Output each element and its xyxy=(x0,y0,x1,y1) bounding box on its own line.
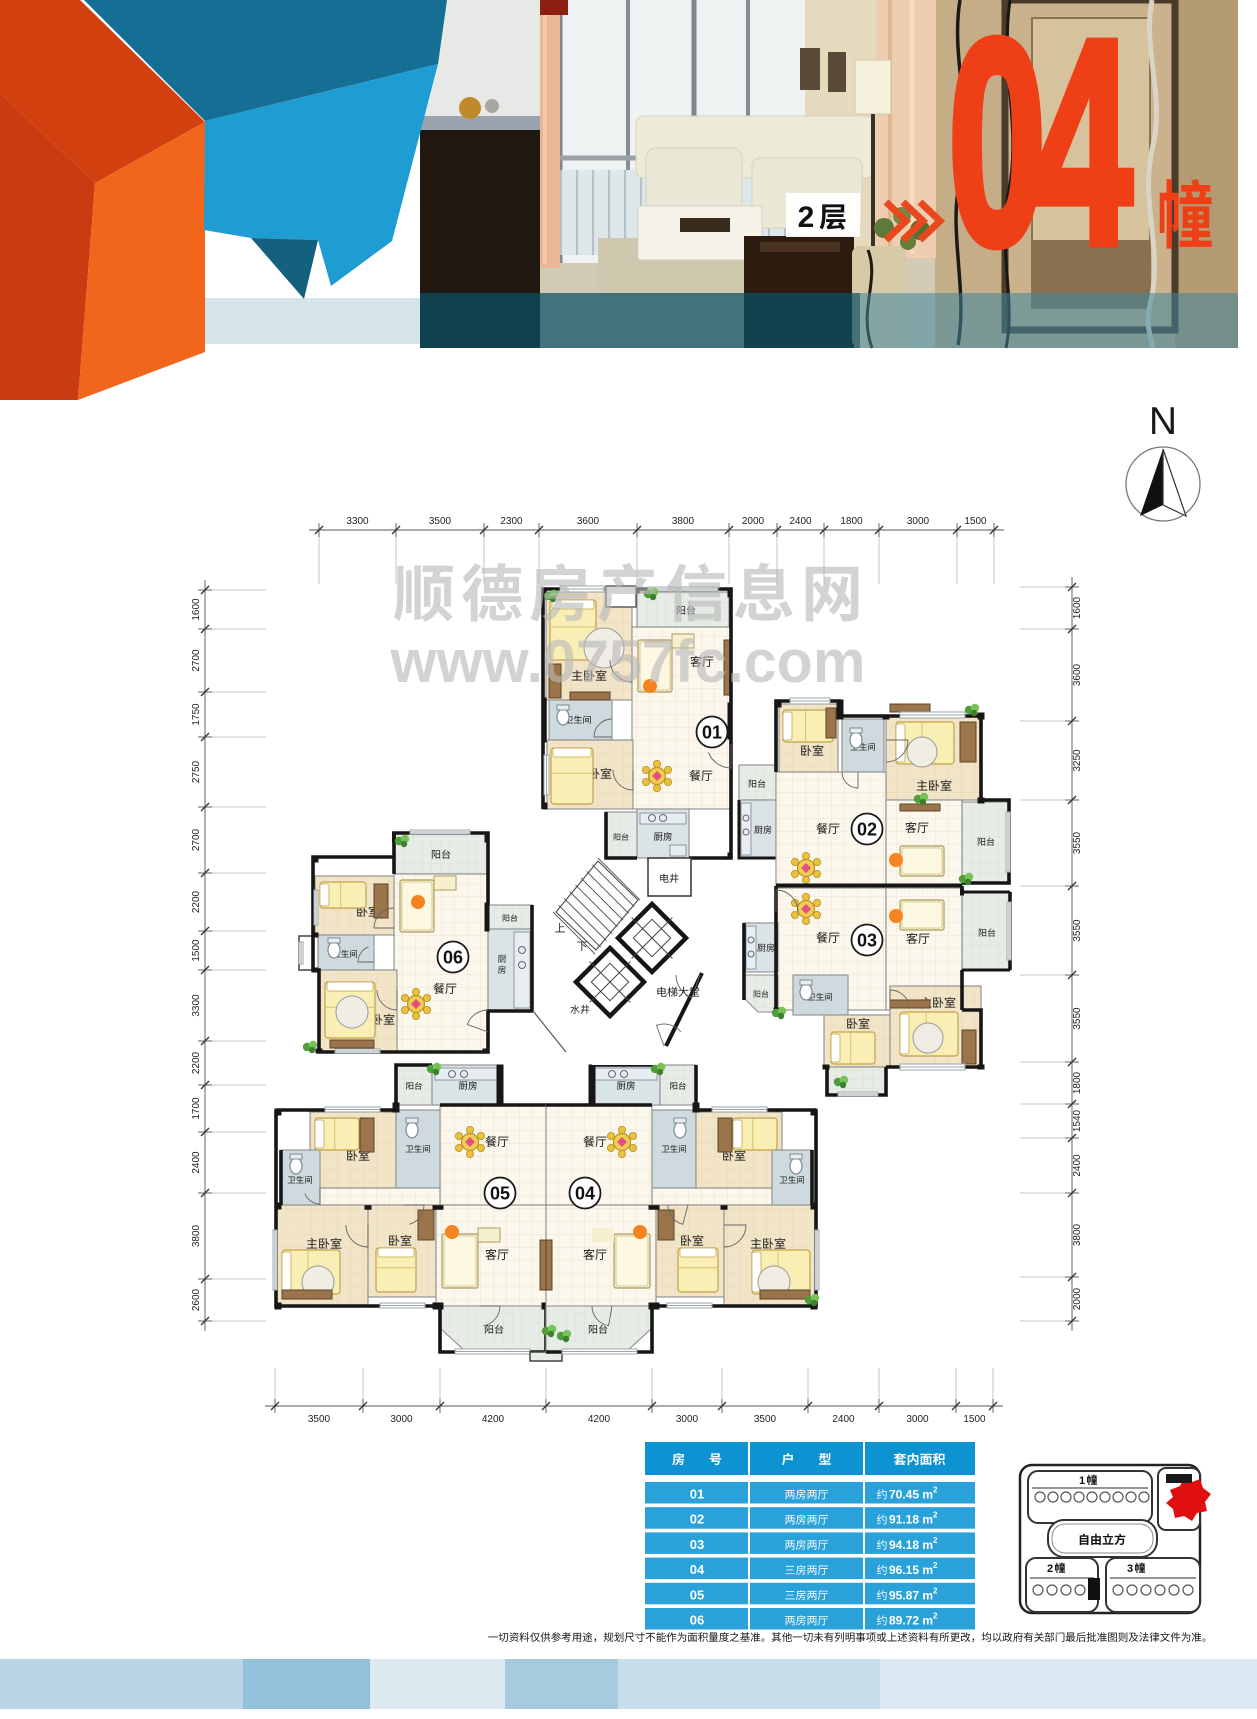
svg-text:3800: 3800 xyxy=(1072,1223,1083,1246)
svg-text:3500: 3500 xyxy=(308,1414,331,1425)
svg-text:2300: 2300 xyxy=(500,516,523,527)
svg-text:3000: 3000 xyxy=(907,516,930,527)
svg-text:3500: 3500 xyxy=(429,516,452,527)
svg-text:2: 2 xyxy=(933,1536,938,1545)
svg-text:3: 3 xyxy=(1127,1563,1133,1575)
svg-text:02: 02 xyxy=(690,1512,704,1527)
svg-text:3550: 3550 xyxy=(1072,1007,1083,1030)
svg-text:2000: 2000 xyxy=(1072,1287,1083,1310)
svg-text:1500: 1500 xyxy=(191,939,202,962)
svg-text:05: 05 xyxy=(690,1587,704,1602)
svg-text:06: 06 xyxy=(690,1613,704,1628)
svg-text:04: 04 xyxy=(948,0,1132,306)
svg-text:3800: 3800 xyxy=(191,1224,202,1247)
svg-text:95.87 m: 95.87 m xyxy=(889,1588,933,1602)
svg-text:2: 2 xyxy=(798,201,815,234)
svg-text:1750: 1750 xyxy=(191,703,202,726)
svg-text:05: 05 xyxy=(490,1184,510,1204)
svg-text:2750: 2750 xyxy=(191,760,202,783)
svg-text:2: 2 xyxy=(933,1561,938,1570)
svg-text:3300: 3300 xyxy=(346,516,369,527)
svg-text:04: 04 xyxy=(690,1562,705,1577)
svg-text:3250: 3250 xyxy=(1072,749,1083,772)
svg-text:www.0757fc.com: www.0757fc.com xyxy=(390,628,866,695)
svg-text:04: 04 xyxy=(575,1184,595,1204)
svg-text:94.18 m: 94.18 m xyxy=(889,1538,933,1552)
svg-text:1: 1 xyxy=(1079,1475,1085,1487)
svg-text:2400: 2400 xyxy=(191,1151,202,1174)
svg-text:3000: 3000 xyxy=(676,1414,699,1425)
svg-text:1500: 1500 xyxy=(964,516,987,527)
svg-text:89.72 m: 89.72 m xyxy=(889,1614,933,1628)
svg-text:2400: 2400 xyxy=(1072,1154,1083,1177)
svg-text:96.15 m: 96.15 m xyxy=(889,1563,933,1577)
svg-text:1600: 1600 xyxy=(1072,596,1083,619)
svg-text:2400: 2400 xyxy=(789,516,812,527)
svg-text:4200: 4200 xyxy=(588,1414,611,1425)
svg-text:2700: 2700 xyxy=(191,649,202,672)
svg-text:2: 2 xyxy=(933,1511,938,1520)
svg-text:01: 01 xyxy=(702,723,722,743)
svg-text:2400: 2400 xyxy=(832,1414,855,1425)
svg-text:2: 2 xyxy=(1047,1563,1053,1575)
svg-text:91.18 m: 91.18 m xyxy=(889,1513,933,1527)
svg-text:2000: 2000 xyxy=(742,516,765,527)
svg-text:06: 06 xyxy=(443,948,463,968)
svg-text:4200: 4200 xyxy=(482,1414,505,1425)
svg-text:3300: 3300 xyxy=(191,994,202,1017)
svg-text:3600: 3600 xyxy=(577,516,600,527)
svg-text:3000: 3000 xyxy=(906,1414,929,1425)
svg-text:1800: 1800 xyxy=(840,516,863,527)
svg-text:2: 2 xyxy=(933,1612,938,1621)
svg-text:1700: 1700 xyxy=(191,1097,202,1120)
svg-text:2700: 2700 xyxy=(191,828,202,851)
svg-text:3550: 3550 xyxy=(1072,919,1083,942)
svg-text:3600: 3600 xyxy=(1072,663,1083,686)
svg-text:1540: 1540 xyxy=(1072,1109,1083,1132)
svg-text:3000: 3000 xyxy=(390,1414,413,1425)
svg-text:01: 01 xyxy=(690,1487,704,1502)
svg-text:N: N xyxy=(1149,400,1177,443)
svg-text:03: 03 xyxy=(857,931,877,951)
svg-text:2: 2 xyxy=(933,1586,938,1595)
svg-text:03: 03 xyxy=(690,1537,704,1552)
svg-text:2: 2 xyxy=(933,1486,938,1495)
svg-text:1500: 1500 xyxy=(963,1414,986,1425)
svg-text:3500: 3500 xyxy=(754,1414,777,1425)
svg-text:3800: 3800 xyxy=(672,516,695,527)
svg-text:2600: 2600 xyxy=(191,1288,202,1311)
svg-text:70.45 m: 70.45 m xyxy=(889,1488,933,1502)
svg-text:02: 02 xyxy=(857,820,877,840)
svg-text:2200: 2200 xyxy=(191,1051,202,1074)
svg-text:3550: 3550 xyxy=(1072,831,1083,854)
svg-text:2200: 2200 xyxy=(191,890,202,913)
svg-text:1800: 1800 xyxy=(1072,1071,1083,1094)
svg-text:1600: 1600 xyxy=(191,598,202,621)
